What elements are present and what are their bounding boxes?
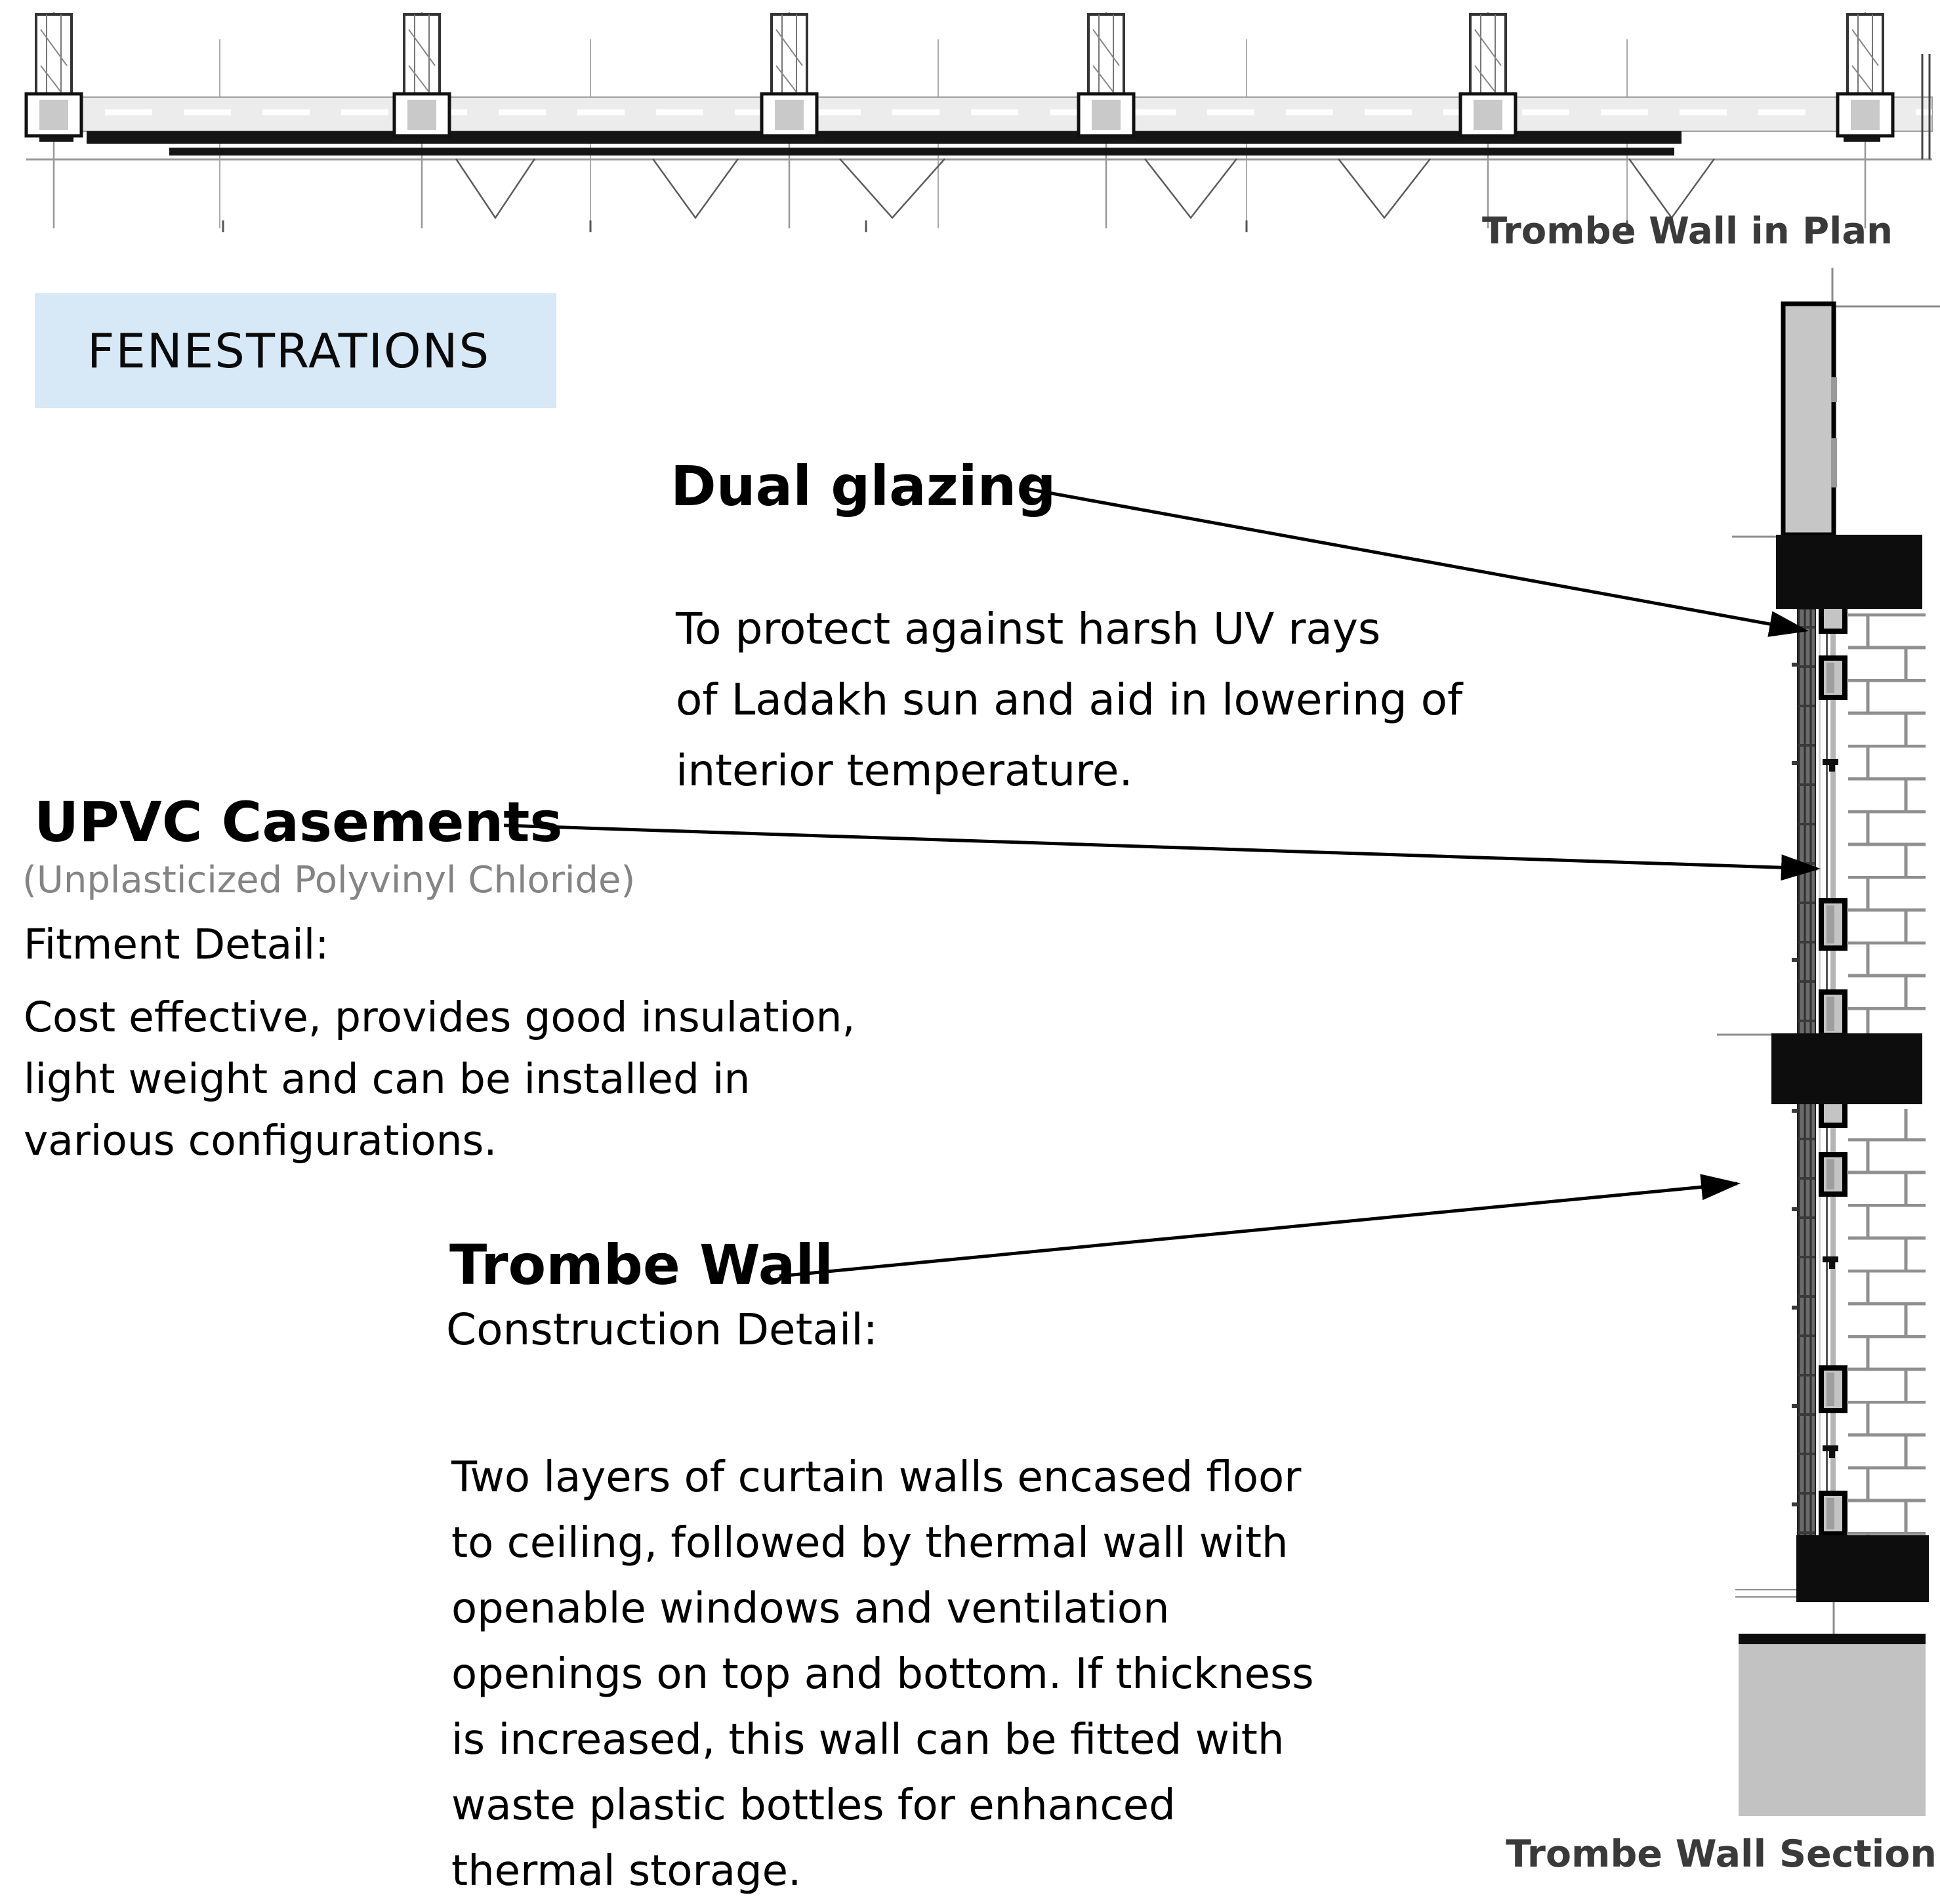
section-drawing [1717, 268, 1940, 1816]
brick-wall-lower [1848, 1109, 1926, 1535]
floor-slab-middle [1771, 1033, 1922, 1104]
brick-wall-upper [1848, 613, 1926, 1033]
fenestrations-sheet: { "page": { "title": "FENESTRATIONS" }, … [0, 0, 1940, 1897]
dual-glazing-description: To protect against harsh UV rays of Lada… [676, 594, 1462, 806]
plan-grid-ticks [223, 220, 1627, 232]
trombe-wall-leader-arrow [779, 1184, 1737, 1276]
page-title-text: FENESTRATIONS [87, 323, 490, 379]
page-title: FENESTRATIONS [35, 293, 556, 408]
trombe-construction-label: Construction Detail: [446, 1308, 878, 1352]
upvc-leader-arrow [504, 825, 1817, 869]
plan-drawing [26, 12, 1932, 232]
ground-slab [1739, 1634, 1926, 1816]
plan-glazing-band [26, 97, 1932, 159]
floor-slab-bottom [1796, 1535, 1929, 1602]
trombe-description: Two layers of curtain walls encased floo… [451, 1445, 1314, 1904]
upvc-casements-subheading: (Unplasticized Polyvinyl Chloride) [22, 862, 635, 899]
trombe-wall-heading: Trombe Wall [449, 1237, 833, 1293]
parapet-wall [1783, 304, 1837, 535]
upvc-fitment-label: Fitment Detail: [24, 924, 329, 965]
upvc-casements-heading: UPVC Casements [34, 795, 562, 850]
upvc-description: Cost effective, provides good insulation… [24, 987, 855, 1172]
section-caption: Trombe Wall Section [1443, 1836, 1937, 1873]
dual-glazing-heading: Dual glazing [671, 459, 1056, 514]
floor-slab-top [1776, 535, 1922, 609]
plan-caption: Trombe Wall in Plan [1420, 213, 1893, 250]
plan-swing-arcs [456, 159, 1714, 218]
plan-inner-wall-line-2 [169, 148, 1674, 155]
plan-inner-wall-line [87, 131, 1682, 144]
